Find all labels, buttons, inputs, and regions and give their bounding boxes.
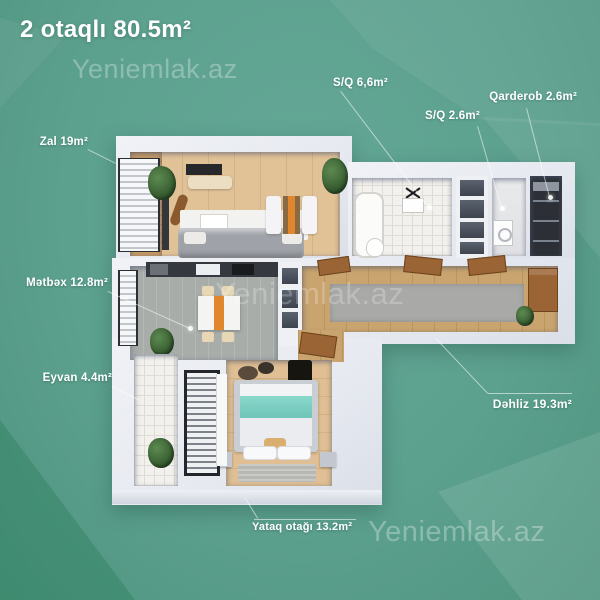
- washing-machine: [493, 220, 513, 246]
- watermark-bottom: Yeniemlak.az: [368, 516, 545, 549]
- bath-light: [402, 198, 424, 213]
- kitchen-chair: [222, 332, 234, 342]
- watermark-top: Yeniemlak.az: [72, 54, 238, 85]
- shelf-unit: [456, 176, 488, 258]
- kitchen-window: [118, 270, 138, 346]
- room-label-dehliz: Dəhliz 19.3m²: [472, 397, 572, 411]
- leader-dot: [427, 205, 432, 210]
- pillow: [243, 446, 277, 460]
- stove: [232, 264, 254, 275]
- sofa-pillow: [184, 232, 206, 244]
- leader-dot: [500, 206, 505, 211]
- room-label-eyvan: Eyvan 4.4m²: [26, 372, 112, 384]
- plant: [322, 158, 348, 194]
- floor-plan-poster: Zal 19m² Mətbəx 12.8m² Eyvan 4.4m² S/Q 6…: [0, 0, 600, 600]
- room-label-sq-large: S/Q 6,6m²: [333, 77, 388, 89]
- plant: [148, 166, 176, 200]
- dining-chair: [266, 196, 281, 234]
- room-label-yataq: Yataq otağı 13.2m²: [252, 521, 352, 533]
- bedroom-rug: [238, 464, 316, 482]
- plant: [150, 328, 174, 356]
- wall-art: [288, 360, 312, 382]
- hall-cabinet: [528, 268, 558, 312]
- wall-decor: [258, 362, 274, 374]
- leader-dot: [548, 195, 553, 200]
- wardrobe-shelf: [533, 240, 559, 242]
- watermark-center: Yeniemlak.az: [215, 276, 404, 312]
- dining-chair: [302, 196, 317, 234]
- kitchen-sink: [196, 264, 220, 275]
- leader-dehliz-underline: [488, 393, 572, 394]
- plant: [148, 438, 174, 468]
- kitchen-chair: [202, 332, 214, 342]
- pillow: [277, 446, 311, 460]
- kitchen-chair: [202, 286, 214, 296]
- room-label-zal: Zal 19m²: [18, 136, 88, 148]
- wardrobe-shelf: [533, 200, 559, 202]
- room-label-metbex: Mətbəx 12.8m²: [10, 277, 108, 289]
- room-label-sq-small: S/Q 2.6m²: [425, 110, 480, 122]
- leader-dot: [188, 326, 193, 331]
- kitchen-appliance: [150, 264, 168, 275]
- ac-unit: [188, 176, 232, 189]
- wall-decor: [238, 366, 258, 380]
- ceiling-vent: [186, 164, 222, 175]
- balcony-window: [184, 370, 220, 476]
- table-runner: [288, 196, 295, 234]
- bed-headboard: [240, 384, 312, 396]
- plant: [516, 306, 534, 326]
- balcony-door-panel: [216, 374, 227, 466]
- room-label-qarderob: Qarderob 2.6m²: [477, 91, 577, 103]
- page-title: 2 otaqlı 80.5m²: [20, 16, 191, 44]
- leader-yataq-underline: [254, 519, 356, 520]
- nightstand: [320, 452, 336, 467]
- toilet: [366, 238, 384, 257]
- bed-teal-blanket: [240, 396, 312, 418]
- wardrobe-shelf: [533, 220, 559, 222]
- zal-window-frame: [162, 195, 169, 250]
